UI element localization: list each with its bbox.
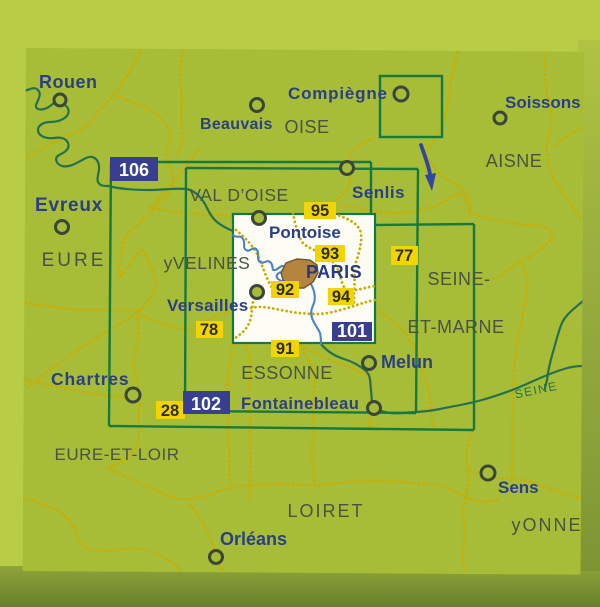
svg-text:101: 101 [337,321,367,341]
svg-text:VAL D’OISE: VAL D’OISE [189,185,288,205]
svg-text:Versailles: Versailles [167,296,248,315]
svg-text:AISNE: AISNE [486,151,543,171]
svg-text:EURE: EURE [42,250,107,271]
svg-text:92: 92 [276,281,294,299]
svg-text:SEINE-: SEINE- [427,269,490,289]
svg-text:yONNE: yONNE [511,515,582,535]
svg-text:Compiègne: Compiègne [288,84,388,103]
svg-text:106: 106 [119,160,149,180]
svg-text:Senlis: Senlis [352,183,405,202]
svg-text:EURE-ET-LOIR: EURE-ET-LOIR [54,445,179,464]
svg-text:Sens: Sens [498,478,539,497]
svg-text:ET-MARNE: ET-MARNE [407,317,504,337]
svg-text:78: 78 [200,321,218,339]
svg-text:94: 94 [332,288,351,306]
svg-text:Fontainebleau: Fontainebleau [241,395,359,413]
svg-text:PARIS: PARIS [306,262,362,282]
svg-text:91: 91 [276,340,294,358]
svg-text:Evreux: Evreux [35,195,103,216]
svg-text:102: 102 [191,394,221,414]
svg-text:28: 28 [161,402,179,420]
svg-text:Melun: Melun [381,352,433,372]
svg-text:OISE: OISE [284,117,329,137]
svg-text:Rouen: Rouen [39,72,98,92]
svg-text:93: 93 [321,245,339,263]
svg-text:yVELINES: yVELINES [164,253,251,273]
svg-text:Soissons: Soissons [505,93,581,112]
svg-text:77: 77 [395,247,413,265]
svg-text:Orléans: Orléans [220,529,287,549]
svg-text:ESSONNE: ESSONNE [241,363,333,383]
svg-text:LOIRET: LOIRET [287,501,364,521]
svg-text:Pontoise: Pontoise [269,223,341,242]
svg-text:Chartres: Chartres [51,369,129,389]
svg-text:Beauvais: Beauvais [200,116,273,133]
svg-text:95: 95 [311,202,329,220]
